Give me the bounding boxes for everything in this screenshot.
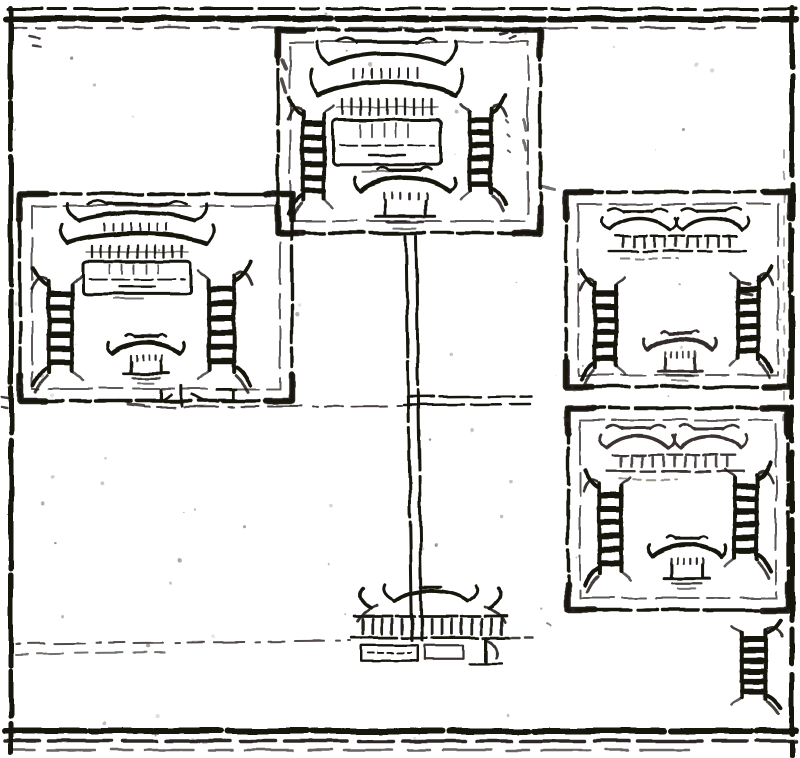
ink-smudge — [128, 404, 144, 406]
paper-speck — [718, 246, 720, 248]
paper-speck — [193, 509, 196, 512]
paper-speck — [555, 375, 556, 376]
paper-speck — [324, 13, 327, 16]
paper-speck — [295, 313, 299, 317]
paper-speck — [681, 128, 684, 131]
paper-speck — [70, 56, 73, 59]
paper-speck — [132, 372, 136, 376]
paper-speck — [582, 364, 584, 366]
paper-speck — [454, 153, 455, 154]
paper-speck — [178, 559, 182, 563]
paper-speck — [655, 148, 657, 150]
paper-speck — [434, 543, 438, 547]
paper-speck — [167, 25, 170, 28]
paper-speck — [412, 736, 415, 739]
paper-speck — [780, 318, 782, 320]
paper-speck — [240, 19, 245, 24]
paper-speck — [101, 481, 105, 485]
paper-speck — [345, 50, 347, 52]
paper-speck — [93, 83, 96, 86]
paper-speck — [61, 615, 64, 618]
paper-speck — [470, 429, 474, 433]
east-cross-road-top — [408, 396, 532, 397]
west-cross-road — [145, 406, 402, 407]
paper-speck — [405, 82, 409, 86]
paper-speck — [421, 547, 424, 550]
paper-speck — [455, 109, 459, 113]
paper-speck — [509, 480, 513, 484]
paper-speck — [170, 581, 173, 584]
paper-speck — [533, 17, 536, 20]
paper-speck — [734, 295, 738, 299]
paper-speck — [42, 501, 46, 505]
paper-speck — [449, 353, 453, 357]
paper-speck — [132, 115, 134, 117]
paper-speck — [298, 304, 301, 307]
paper-speck — [479, 622, 483, 626]
paper-speck — [156, 714, 160, 718]
paper-speck — [76, 343, 78, 345]
paper-speck — [105, 457, 108, 460]
paper-speck — [103, 721, 107, 725]
paper-speck — [50, 393, 54, 397]
paper-speck — [679, 284, 681, 286]
paper-speck — [710, 69, 714, 73]
paper-speck — [182, 512, 184, 514]
paper-speck — [525, 33, 527, 35]
paper-speck — [14, 302, 17, 305]
temple-map-plate — [0, 0, 800, 758]
paper-speck — [15, 129, 17, 131]
paper-speck — [243, 526, 246, 529]
paper-speck — [541, 607, 543, 609]
paper-speck — [765, 640, 768, 643]
woodblock-print-page — [0, 0, 800, 758]
paper-speck — [345, 613, 347, 615]
paper-speck — [50, 476, 54, 480]
paper-speck — [211, 634, 215, 638]
paper-speck — [145, 643, 149, 647]
paper-speck — [40, 374, 44, 378]
paper-speck — [429, 438, 431, 440]
paper-speck — [668, 395, 670, 397]
paper-speck — [329, 503, 333, 507]
paper-speck — [328, 563, 330, 565]
paper-speck — [158, 249, 161, 252]
paper-speck — [368, 62, 372, 66]
paper-speck — [694, 63, 698, 67]
paper-speck — [576, 557, 578, 559]
paper-speck — [156, 734, 158, 736]
paper-speck — [506, 714, 509, 717]
paper-speck — [112, 197, 114, 199]
paper-speck — [191, 738, 195, 742]
paper-speck — [680, 346, 683, 349]
paper-speck — [516, 283, 517, 284]
paper-speck — [500, 514, 503, 517]
paper-speck — [612, 46, 615, 49]
paper-speck — [54, 541, 57, 544]
